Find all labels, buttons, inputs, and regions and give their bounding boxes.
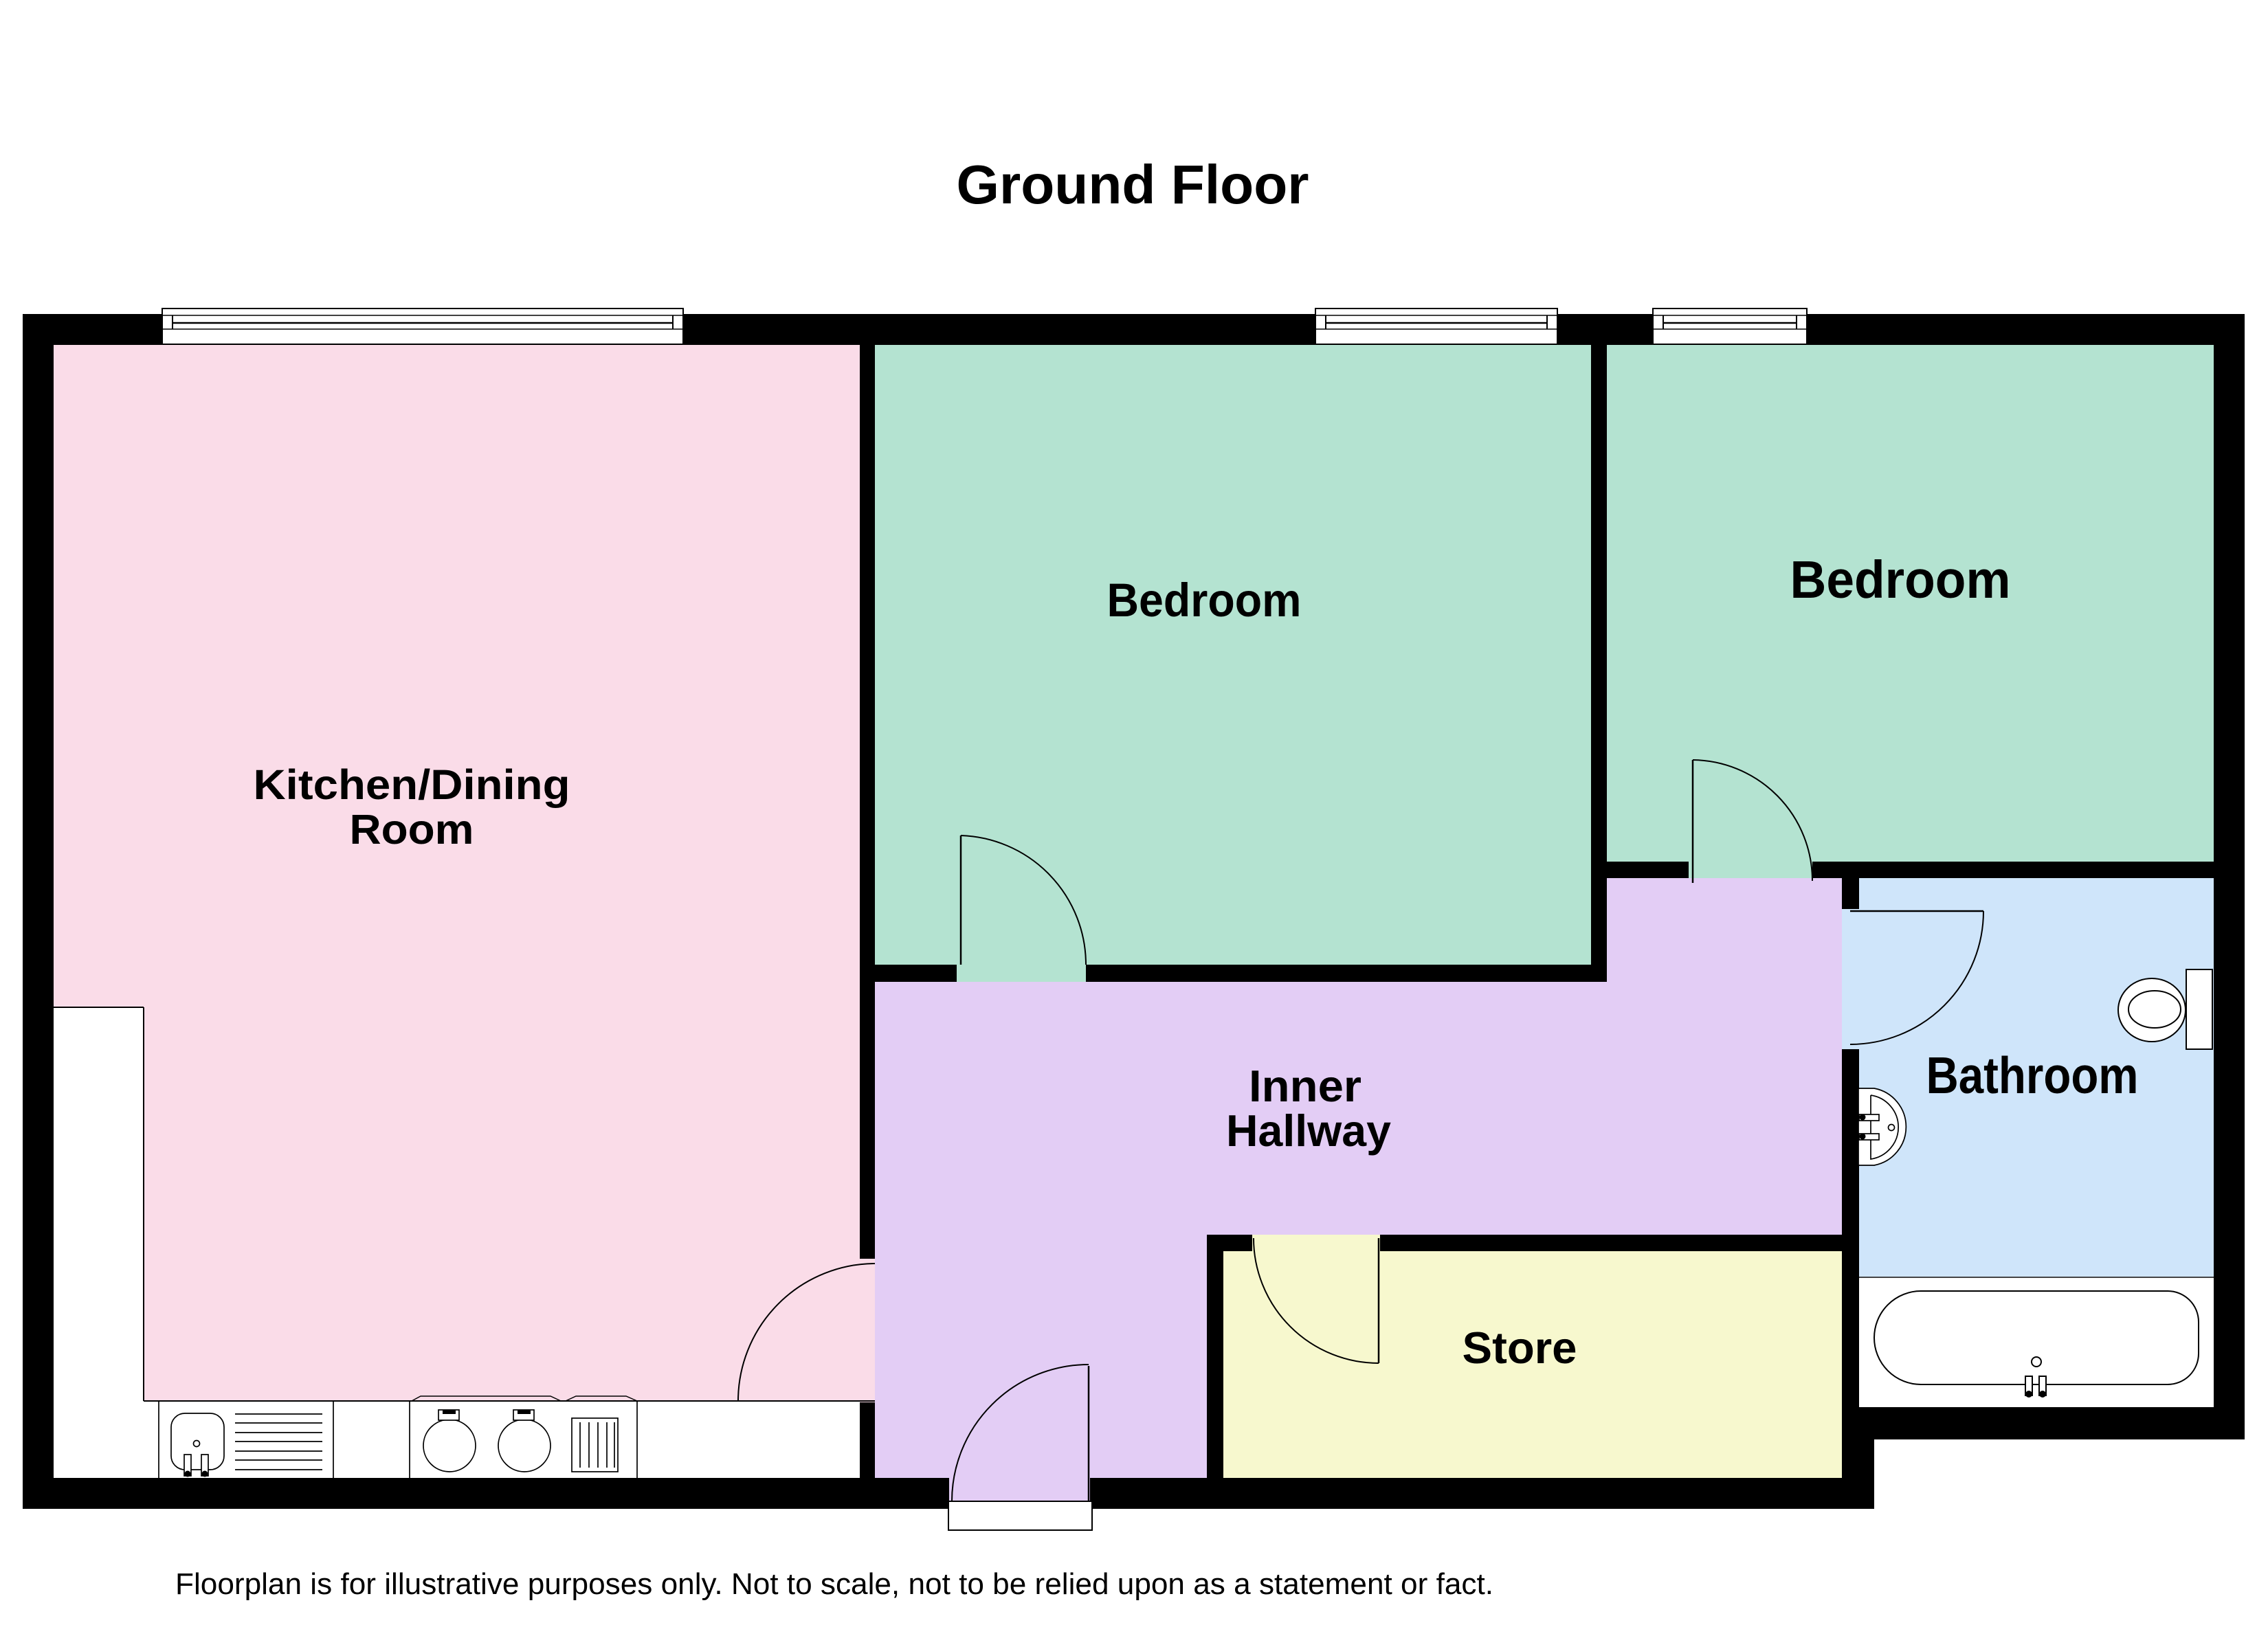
svg-text:Floorplan is for illustrative: Floorplan is for illustrative purposes o…	[175, 1567, 1493, 1601]
svg-text:Inner: Inner	[1249, 1061, 1361, 1111]
svg-text:Bedroom: Bedroom	[1107, 574, 1302, 627]
svg-text:Store: Store	[1463, 1323, 1577, 1373]
svg-text:Hallway: Hallway	[1226, 1106, 1391, 1156]
svg-text:Bedroom: Bedroom	[1790, 550, 2011, 609]
svg-text:Kitchen/Dining: Kitchen/Dining	[254, 761, 570, 808]
svg-text:Ground Floor: Ground Floor	[957, 154, 1309, 215]
svg-text:Room: Room	[350, 806, 474, 853]
svg-text:Bathroom: Bathroom	[1926, 1046, 2139, 1104]
